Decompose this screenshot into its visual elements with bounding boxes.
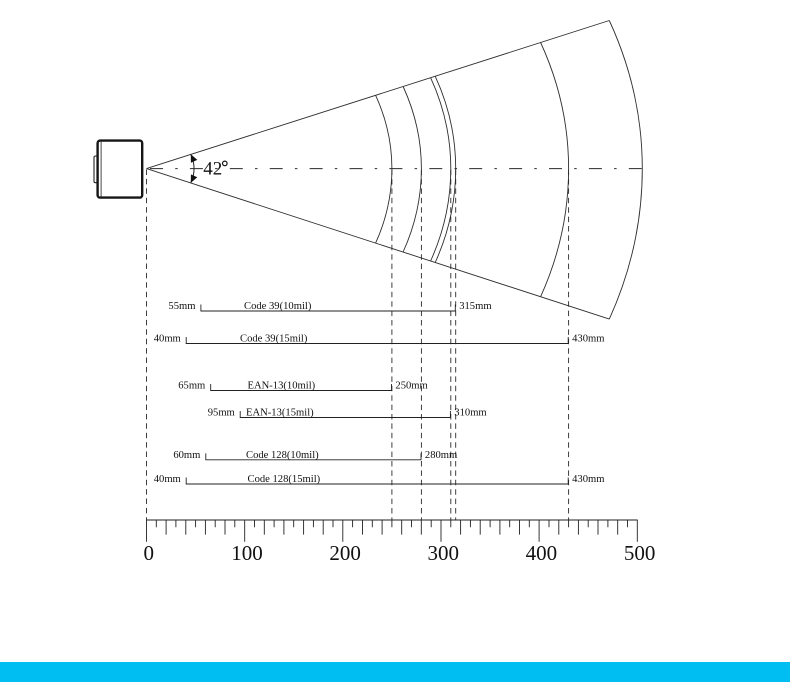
svg-text:250mm: 250mm [395,381,428,392]
svg-text:Code 128(15mil): Code 128(15mil) [248,474,321,485]
svg-text:55mm: 55mm [168,301,196,312]
svg-text:65mm: 65mm [178,381,206,392]
svg-text:300: 300 [428,541,460,565]
svg-text:40mm: 40mm [154,334,182,345]
svg-text:42: 42 [203,159,222,180]
svg-text:100: 100 [231,541,263,565]
svg-text:Code 128(10mil): Code 128(10mil) [246,450,319,461]
svg-text:Code 39(10mil): Code 39(10mil) [244,301,312,312]
svg-text:EAN-13(15mil): EAN-13(15mil) [246,408,314,419]
svg-text:Code 39(15mil): Code 39(15mil) [240,334,308,345]
svg-text:40mm: 40mm [154,474,182,485]
svg-text:60mm: 60mm [173,450,201,461]
svg-text:280mm: 280mm [425,450,458,461]
svg-text:500: 500 [624,541,656,565]
svg-text:315mm: 315mm [459,301,492,312]
svg-text:430mm: 430mm [572,474,605,485]
svg-text:310mm: 310mm [454,408,487,419]
svg-text:95mm: 95mm [208,408,236,419]
svg-text:400: 400 [526,541,558,565]
svg-text:430mm: 430mm [572,334,605,345]
svg-text:0: 0 [144,541,155,565]
svg-text:EAN-13(10mil): EAN-13(10mil) [248,381,316,392]
svg-text:200: 200 [329,541,361,565]
